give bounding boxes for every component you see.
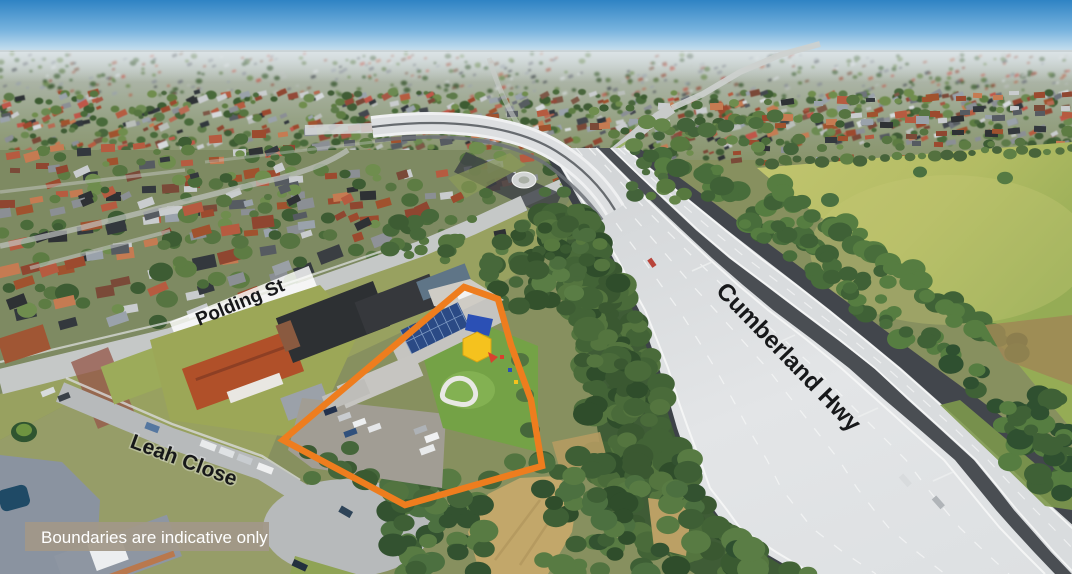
svg-text:Boundaries are indicative only: Boundaries are indicative only bbox=[41, 528, 268, 547]
